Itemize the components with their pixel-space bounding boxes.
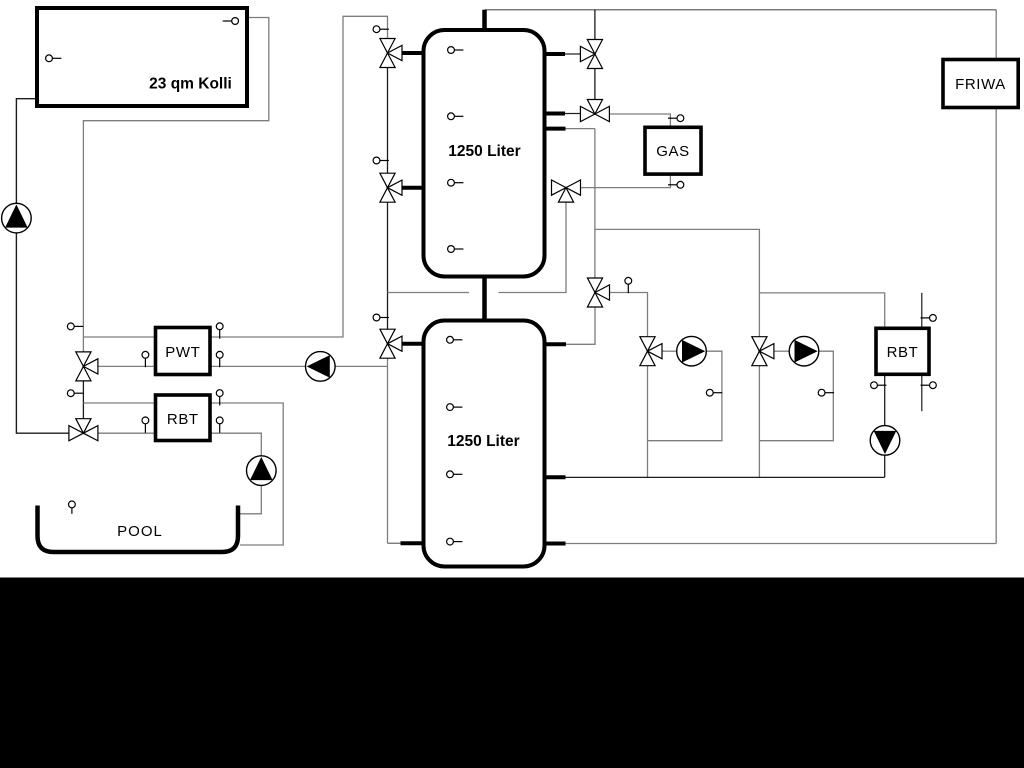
- svg-text:PWT: PWT: [165, 344, 200, 361]
- svg-text:POOL: POOL: [117, 523, 163, 540]
- svg-text:RBT: RBT: [887, 344, 919, 361]
- svg-text:1250 Liter: 1250 Liter: [447, 433, 519, 450]
- svg-text:GAS: GAS: [656, 143, 689, 160]
- svg-text:RBT: RBT: [167, 411, 199, 428]
- svg-text:FRIWA: FRIWA: [955, 76, 1006, 93]
- svg-text:23 qm Kolli: 23 qm Kolli: [149, 76, 232, 93]
- svg-text:1250 Liter: 1250 Liter: [448, 143, 520, 160]
